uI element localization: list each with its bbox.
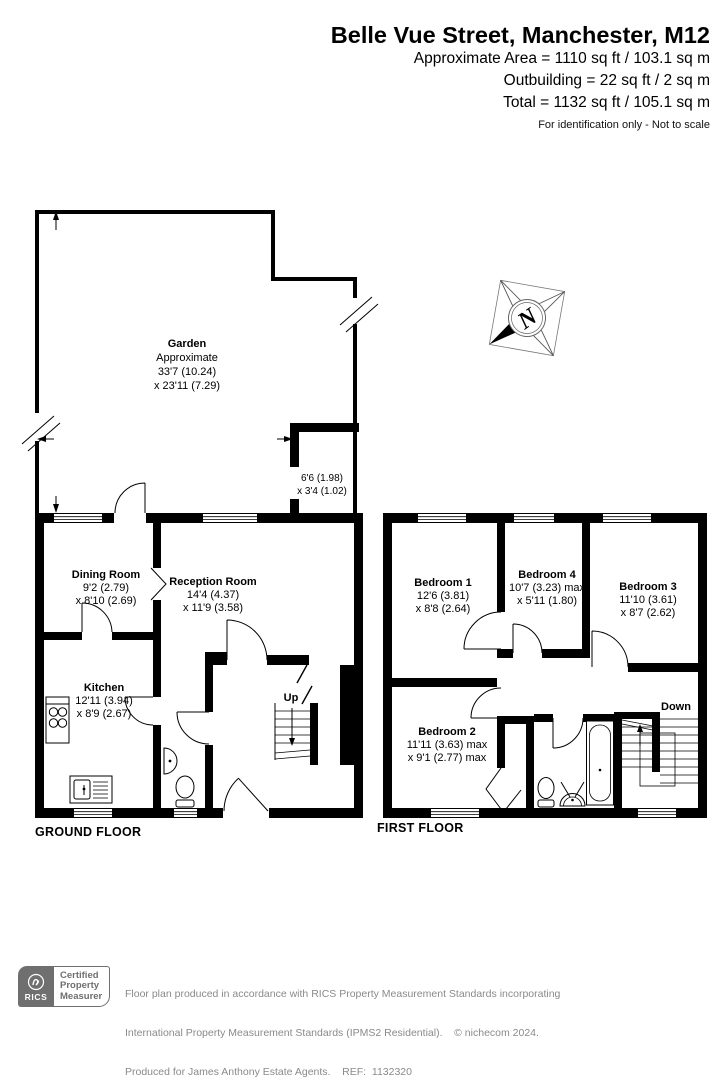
ground-floor-exterior-walls [35,513,363,818]
stairs-up-arrow [289,738,295,746]
svg-text:x 8'10 (2.69): x 8'10 (2.69) [76,595,137,607]
understairs-break [297,665,312,704]
svg-text:Bedroom 1: Bedroom 1 [414,577,471,589]
ground-floor-label: GROUND FLOOR [35,825,141,839]
svg-text:11'11 (3.63) max: 11'11 (3.63) max [407,739,488,751]
certified-property-measurer-badge: Certified Property Measurer [54,966,110,1007]
wc-basin-icon [164,748,177,774]
footer-line-2: International Property Measurement Stand… [125,1027,560,1040]
front-door [223,778,269,819]
garden-approx: Approximate [156,352,218,364]
room-label-bedroom3: Bedroom 3 11'10 (3.61) x 8'7 (2.62) [619,581,677,619]
garden-dim2: x 23'11 (7.29) [154,380,220,392]
room-label-reception: Reception Room 14'4 (4.37) x 11'9 (3.58) [169,576,257,614]
bathroom-toilet-icon [538,778,554,808]
room-label-kitchen: Kitchen 12'11 (3.94) x 8'9 (2.67) [75,682,133,720]
svg-text:12'11 (3.94): 12'11 (3.94) [75,695,133,707]
bedroom1-door-arc [464,612,501,649]
garden-door [114,483,146,524]
svg-text:Bedroom 4: Bedroom 4 [518,569,576,581]
svg-text:Kitchen: Kitchen [84,682,125,694]
wc-toilet-icon [176,776,194,807]
reception-door-arc [227,620,267,660]
bath-icon [587,721,614,805]
svg-text:12'6 (3.81): 12'6 (3.81) [417,590,469,602]
first-floor-interior-walls [383,523,707,808]
room-label-bedroom2: Bedroom 2 11'11 (3.63) max x 9'1 (2.77) … [407,726,488,764]
dining-door-arc [82,603,112,632]
compass-icon: N [463,254,591,382]
garden-name: Garden [168,338,207,350]
stairs-up-label: Up [284,692,299,704]
bedroom2-door-arc [471,688,501,718]
kitchen-sink-icon [70,776,112,803]
bathroom-sink-icon [560,782,585,806]
room-label-bedroom1: Bedroom 1 12'6 (3.81) x 8'8 (2.64) [414,577,471,615]
rics-wordmark: RICS [25,992,48,1002]
rics-lion-icon [25,972,47,992]
svg-text:Dining Room: Dining Room [72,569,141,581]
bathroom-door-arc [553,718,583,748]
svg-text:10'7 (3.23) max: 10'7 (3.23) max [509,582,586,594]
rics-certification-badge: RICS Certified Property Measurer [18,966,110,1007]
garden-dim1: 33'7 (10.24) [158,366,216,378]
svg-text:14'4 (4.37): 14'4 (4.37) [187,589,239,601]
garden-plan: Garden Approximate 33'7 (10.24) x 23'11 … [22,210,378,515]
svg-text:x 5'11 (1.80): x 5'11 (1.80) [517,595,577,607]
outbuilding-dim1: 6'6 (1.98) [301,473,343,484]
bedroom3-door-arc [592,631,628,667]
svg-text:9'2 (2.79): 9'2 (2.79) [83,582,129,594]
svg-text:x 9'1 (2.77) max: x 9'1 (2.77) max [408,752,487,764]
svg-text:x 8'7 (2.62): x 8'7 (2.62) [621,607,676,619]
wc-door-arc [177,712,209,744]
footer-disclaimer: Floor plan produced in accordance with R… [125,962,560,1092]
garden-label: Garden Approximate 33'7 (10.24) x 23'11 … [154,338,220,392]
floor-plan-canvas: Garden Approximate 33'7 (10.24) x 23'11 … [0,0,724,1024]
outbuilding-dim2: x 3'4 (1.02) [297,486,347,497]
svg-text:Bedroom 2: Bedroom 2 [418,726,475,738]
footer-line-1: Floor plan produced in accordance with R… [125,988,560,1001]
stairs-up: Up [275,692,310,760]
floorplan-page: { "header": { "title": "Belle Vue Street… [0,0,724,1024]
opening-chevron [151,568,166,600]
closet-doors [486,768,521,809]
svg-text:x 11'9 (3.58): x 11'9 (3.58) [183,602,243,614]
ground-floor-interior-walls [44,523,354,808]
footer-line-3: Produced for James Anthony Estate Agents… [125,1066,560,1079]
bedroom4-door-arc [513,624,542,653]
first-floor-label: FIRST FLOOR [377,821,464,835]
ground-floor-plan: Up Dining Room 9'2 (2.79) x 8'10 [35,483,363,839]
ground-floor-doors [82,603,267,744]
svg-text:x 8'8 (2.64): x 8'8 (2.64) [416,603,471,615]
svg-text:Reception Room: Reception Room [169,576,257,588]
outbuilding-plan: 6'6 (1.98) x 3'4 (1.02) [290,423,359,515]
svg-text:Bedroom 3: Bedroom 3 [619,581,676,593]
room-label-bedroom4: Bedroom 4 10'7 (3.23) max x 5'11 (1.80) [509,569,586,607]
rics-logo: RICS [18,966,54,1007]
room-label-dining: Dining Room 9'2 (2.79) x 8'10 (2.69) [72,569,141,607]
svg-text:11'10 (3.61): 11'10 (3.61) [619,594,677,606]
svg-text:x 8'9 (2.67): x 8'9 (2.67) [77,708,132,720]
stove-icon [46,697,69,743]
first-floor-plan: Down Bedroom 1 12'6 (3.81) x 8'8 (2.64) … [377,513,707,835]
stairs-down-label: Down [661,701,691,713]
badge-line: Measurer [60,992,102,1003]
